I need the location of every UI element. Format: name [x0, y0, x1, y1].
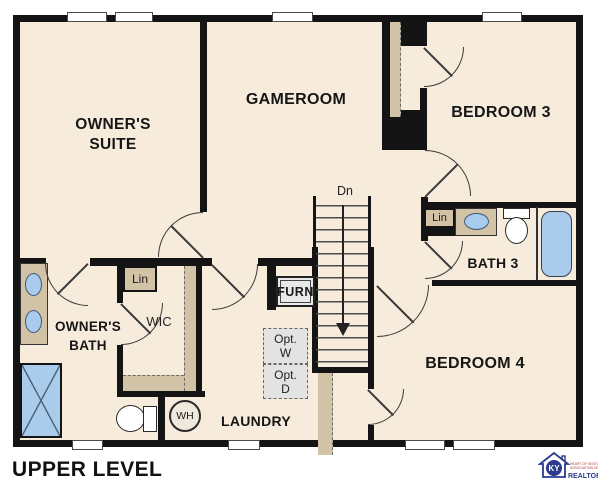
furnace-box: FURN — [276, 276, 315, 307]
room-label-line: OWNER'S — [30, 317, 146, 336]
wall — [400, 22, 427, 46]
wall — [90, 258, 212, 266]
floor-plan-page: Lin Lin FURN Opt. W — [0, 0, 600, 495]
sink — [25, 273, 42, 296]
wall — [200, 22, 207, 212]
closet-shelf — [390, 22, 401, 117]
wall — [196, 266, 202, 397]
wall — [267, 266, 276, 310]
shower — [20, 363, 62, 438]
room-label-owners-bath: OWNER'S BATH — [30, 317, 146, 355]
room-label-gameroom: GAMEROOM — [213, 90, 379, 110]
window — [72, 440, 103, 450]
page-title: UPPER LEVEL — [12, 458, 162, 482]
window — [405, 440, 445, 450]
svg-text:REALTORS: REALTORS — [568, 473, 598, 480]
room-label-bath3: BATH 3 — [443, 253, 543, 273]
svg-text:KY: KY — [548, 464, 560, 473]
optional-washer-box: Opt. W — [263, 328, 308, 364]
stairs-direction-arrow — [336, 323, 350, 336]
wall — [423, 228, 455, 236]
room-label-owners-suite: OWNER'S SUITE — [43, 115, 183, 155]
window — [115, 12, 153, 22]
room-label-line: SUITE — [43, 135, 183, 155]
room-label-bedroom3: BEDROOM 3 — [421, 103, 581, 123]
wall — [158, 397, 165, 440]
optional-washer-label: Opt. — [274, 332, 297, 346]
window — [453, 440, 495, 450]
water-heater: WH — [169, 400, 201, 432]
toilet-bowl — [116, 405, 145, 432]
linen-closet-label: Lin — [132, 272, 148, 286]
linen-closet-label: Lin — [432, 212, 447, 224]
furnace-label: FURN — [280, 280, 311, 303]
toilet-bowl — [505, 217, 528, 244]
svg-text:ASSOCIATION OF: ASSOCIATION OF — [570, 466, 598, 470]
stair-rail — [368, 196, 371, 248]
stairs-direction-line — [342, 205, 344, 327]
water-heater-label: WH — [176, 410, 194, 422]
window — [482, 12, 522, 22]
wall — [432, 280, 576, 286]
window — [228, 440, 260, 450]
room-label-line: OWNER'S — [43, 115, 183, 135]
room-label-bedroom4: BEDROOM 4 — [395, 354, 555, 374]
closet-shelf — [123, 375, 184, 391]
room-label-laundry: LAUNDRY — [206, 411, 306, 431]
optional-dryer-box: Opt. D — [263, 364, 308, 399]
optional-washer-label: W — [280, 346, 291, 360]
closet-shelf — [318, 373, 333, 455]
window — [272, 12, 313, 22]
sink — [464, 213, 489, 230]
linen-closet: Lin — [424, 208, 455, 228]
floor-plan: Lin Lin FURN Opt. W — [13, 15, 583, 447]
stairs-down-label: Dn — [331, 184, 359, 198]
room-label-line: BATH — [30, 336, 146, 355]
window — [67, 12, 107, 22]
optional-dryer-label: Opt. — [274, 368, 297, 382]
bathtub — [541, 211, 572, 277]
shower-glass-marks — [22, 365, 60, 436]
toilet-tank — [143, 406, 157, 432]
wall — [258, 258, 318, 266]
realtors-logo-graphic: KY HEART OF KENTUCKY ASSOCIATION OF REAL… — [538, 450, 598, 492]
optional-dryer-label: D — [281, 382, 290, 396]
linen-closet: Lin — [123, 266, 157, 292]
realtors-logo: KY HEART OF KENTUCKY ASSOCIATION OF REAL… — [538, 450, 598, 492]
room-label-wic: WIC — [134, 314, 184, 329]
closet-shelf — [184, 266, 196, 391]
wall — [368, 425, 374, 440]
